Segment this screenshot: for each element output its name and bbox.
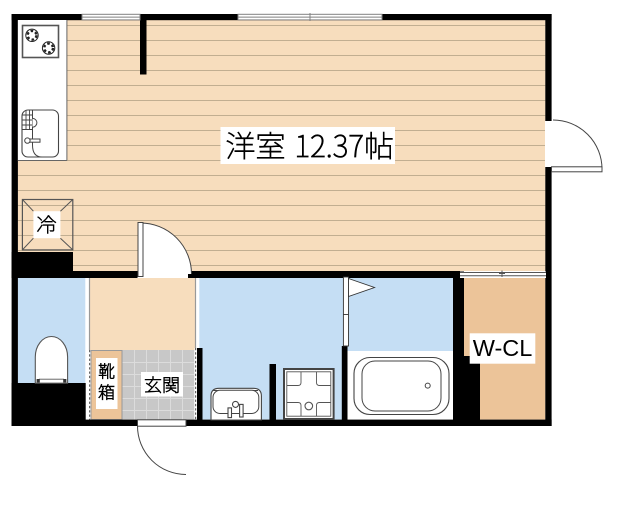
- svg-text:W-CL: W-CL: [473, 335, 533, 361]
